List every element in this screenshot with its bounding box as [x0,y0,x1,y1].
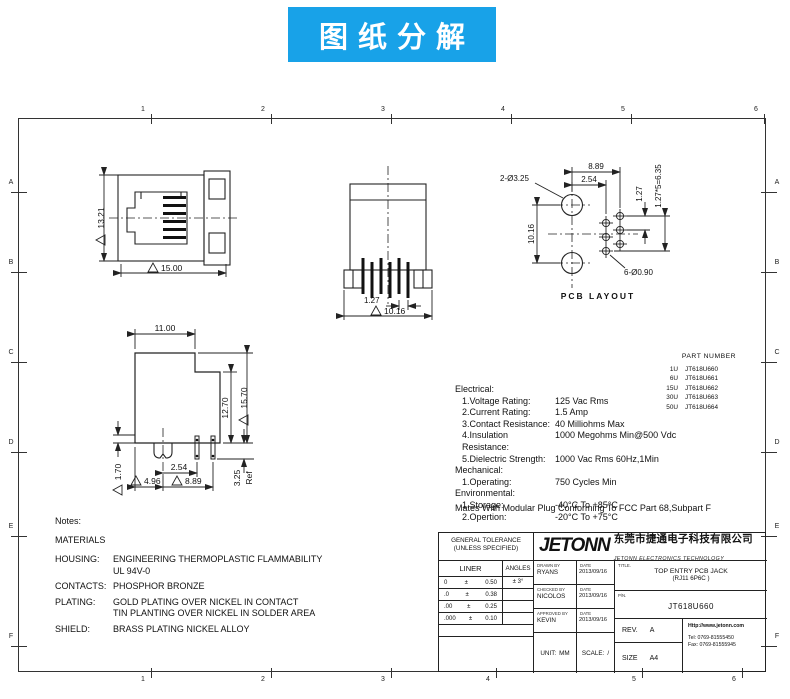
zone-row-label: C [5,348,17,358]
part-number-title: PART NUMBER [650,353,768,360]
zone-row-label: B [5,258,17,268]
zone-row-label: A [5,178,17,188]
zone-col-label: 5 [628,675,640,685]
size-cell: SIZE A4 [615,643,683,673]
title-block: GENERAL TOLERANCE (UNLESS SPECIFIED) LIN… [438,532,766,672]
tolerance-header: GENERAL TOLERANCE (UNLESS SPECIFIED) [439,533,534,561]
part-number-value: JT618U660 [615,602,767,611]
fcc-compliance-note: Mates With Modular Plug Conforming To FC… [455,503,765,513]
dim-t-label: 1.70 [113,463,123,495]
zone-col-label: 2 [257,675,269,685]
note-row: SHIELD: BRASS PLATING NICKEL ALLOY [55,624,400,636]
zone-col-label: 6 [728,675,740,685]
inspection-triangle-icon [113,485,122,495]
tolerance-empty-cell [439,637,534,673]
dim-w-label: 11.00 [155,323,176,333]
svg-text:15.70: 15.70 [239,387,249,409]
inspection-triangle-icon [131,476,141,485]
side-view-outline [135,353,220,443]
checked-date-cell: DATE 2013/09/16 [577,585,615,609]
scale-cell: SCALE: / [577,633,615,673]
company-fax: Fax: 0769-81555945 [688,642,764,650]
dim-p3-label: 8.89 [172,476,202,486]
holes-label: 2-Ø3.25 [500,174,529,183]
zone-row-label: E [5,522,17,532]
drawing-title: TOP ENTRY PCB JACK [615,568,767,575]
company-band: JETONN 东莞市捷通电子科技有限公司 JETONN ELECTRONICS … [534,533,767,561]
dim-width-label: 15.00 [148,263,183,273]
pcb-layout-caption: PCB LAYOUT [561,291,635,301]
tolerance-row: .000±0.10 [439,613,503,625]
angles-column-header: ANGLES [503,561,534,577]
revision-cell: REV. A [615,619,683,643]
company-logo: JETONN [534,535,614,559]
pin-view-drawing: 1.27 10.16 [330,158,460,330]
zone-col-label: 5 [617,105,629,115]
spec-row: 2.Current Rating:1.5 Amp [447,407,715,419]
note-row: CONTACTS: PHOSPHOR BRONZE [55,581,400,593]
zone-row-label: E [771,522,783,532]
front-contacts [163,196,186,239]
zone-col-label: 1 [137,675,149,685]
dimension-lines [532,167,670,268]
company-website: Http://www.jetonn.com [688,623,764,631]
inspection-triangle-icon [371,306,381,315]
inspection-triangle-icon [172,476,182,485]
zone-row-label: D [5,438,17,448]
spec-section-heading: Electrical: [447,384,715,396]
zone-row-label: F [771,632,783,642]
zone-col-label: 1 [137,105,149,115]
drawn-date-cell: DATE 2013/09/16 [577,561,615,585]
side-view-drawing: 11.00 12.70 15.70 1.70 2.54 4.96 8.89 3.… [76,316,346,506]
zone-col-label: 3 [377,675,389,685]
checked-by-cell: CHECKED BY NICOLOS [534,585,577,609]
spec-row: 4.Insulation Resistance:1000 Megohms Min… [447,430,715,453]
note-row: HOUSING: ENGINEERING THERMOPLASTIC FLAMM… [55,554,400,577]
drawn-by-cell: DRAWN BY RYANS [534,561,577,585]
table-row: 6U JT618U661 [650,374,768,383]
drawing-title-cell: TITLE. TOP ENTRY PCB JACK (RJ11 6P6C ) [615,561,767,591]
company-name-cn: 东莞市捷通电子科技有限公司 [614,533,753,545]
tolerance-angle [503,613,534,625]
notes-block: Notes: MATERIALS HOUSING: ENGINEERING TH… [55,516,400,639]
zone-row-label: D [771,438,783,448]
svg-text:15.00: 15.00 [161,263,183,273]
zone-row-label: C [771,348,783,358]
spec-section-heading: Mechanical: [447,465,715,477]
banner-title: 图纸分解 [309,14,475,56]
materials-heading: MATERIALS [55,535,400,547]
page: 图纸分解 1 2 3 4 5 6 1 2 3 4 5 6 A B C D E F… [0,0,790,699]
zone-col-label: 4 [497,105,509,115]
table-row: 1U JT618U660 [650,365,768,374]
svg-text:4.96: 4.96 [144,476,161,486]
spec-row: 5.Dielectric Strength:1000 Vac Rms 60Hz,… [447,454,715,466]
company-telephone: Tel: 0769-81555450 [688,635,764,643]
approved-date-cell: DATE 2013/09/16 [577,609,615,633]
svg-text:13.21: 13.21 [96,207,106,229]
tolerance-row: .0±0.38 [439,589,503,601]
spec-row: 2.Opertion:-20°C To +75°C [447,512,715,524]
zone-row-label: B [771,258,783,268]
svg-text:10.16: 10.16 [384,306,406,316]
note-row: PLATING: GOLD PLATING OVER NICKEL IN CON… [55,597,400,620]
spec-row: 1.Voltage Rating:125 Vac Rms [447,396,715,408]
zone-col-label: 3 [377,105,389,115]
dim-w-label: 8.89 [588,162,604,171]
unit-cell: UNIT: MM [534,633,577,673]
svg-text:8.89: 8.89 [185,476,202,486]
notes-title: Notes: [55,516,400,528]
dim-p1-label: 2.54 [171,462,188,472]
svg-text:1.70: 1.70 [113,463,123,480]
front-view-drawing: 13.21 15.00 [93,166,268,284]
dim-total-label: 1.27*5=6.35 [654,164,663,208]
dim-pitch-label: 1.27 [364,296,380,305]
approved-by-cell: APPROVED BY KEVIN [534,609,577,633]
spec-section-heading: Environmental: [447,488,715,500]
spec-row: 3.Contact Resistance:40 Milliohms Max [447,419,715,431]
tolerance-empty-row [439,625,534,637]
dim-span-label: 10.16 [371,306,406,316]
pins [362,258,410,298]
dim-ref-label: Ref [244,471,254,485]
dim-h1-label: 12.70 [220,397,230,419]
tolerance-angle: ± 3° [503,577,534,589]
pads-label: 6-Ø0.90 [624,268,653,277]
tolerance-angle [503,589,534,601]
liner-column-header: LINER [439,561,503,577]
dim-height-label: 13.21 [96,207,106,245]
solder-pins [195,436,215,459]
zone-col-label: 6 [750,105,762,115]
tolerance-row: 0±0.50 [439,577,503,589]
spec-row: 1.Operating:750 Cycles Min [447,477,715,489]
dim-h2-label: 15.70 [239,387,249,425]
zone-row-label: A [771,178,783,188]
contact-cell: Http://www.jetonn.com Tel: 0769-81555450… [683,619,767,673]
tolerance-angle [503,601,534,613]
zone-col-label: 4 [482,675,494,685]
zone-col-label: 2 [257,105,269,115]
inspection-triangle-icon [148,263,158,272]
zone-row-label: F [5,632,17,642]
dim-off-label: 2.54 [581,175,597,184]
tolerance-row: .00±0.25 [439,601,503,613]
banner: 图纸分解 [288,7,496,62]
dim-h-label: 10.16 [527,223,536,244]
dim-tail-label: 3.25 [232,469,242,486]
dim-p2-label: 4.96 [131,476,161,486]
drawing-subtitle: (RJ11 6P6C ) [615,575,767,582]
part-number-cell: P/N. JT618U660 [615,591,767,619]
pcb-layout-drawing: 8.89 2.54 10.16 1.27 1.27*5=6.35 2-Ø3.25… [498,138,703,310]
dim-pitch-label: 1.27 [635,186,644,202]
